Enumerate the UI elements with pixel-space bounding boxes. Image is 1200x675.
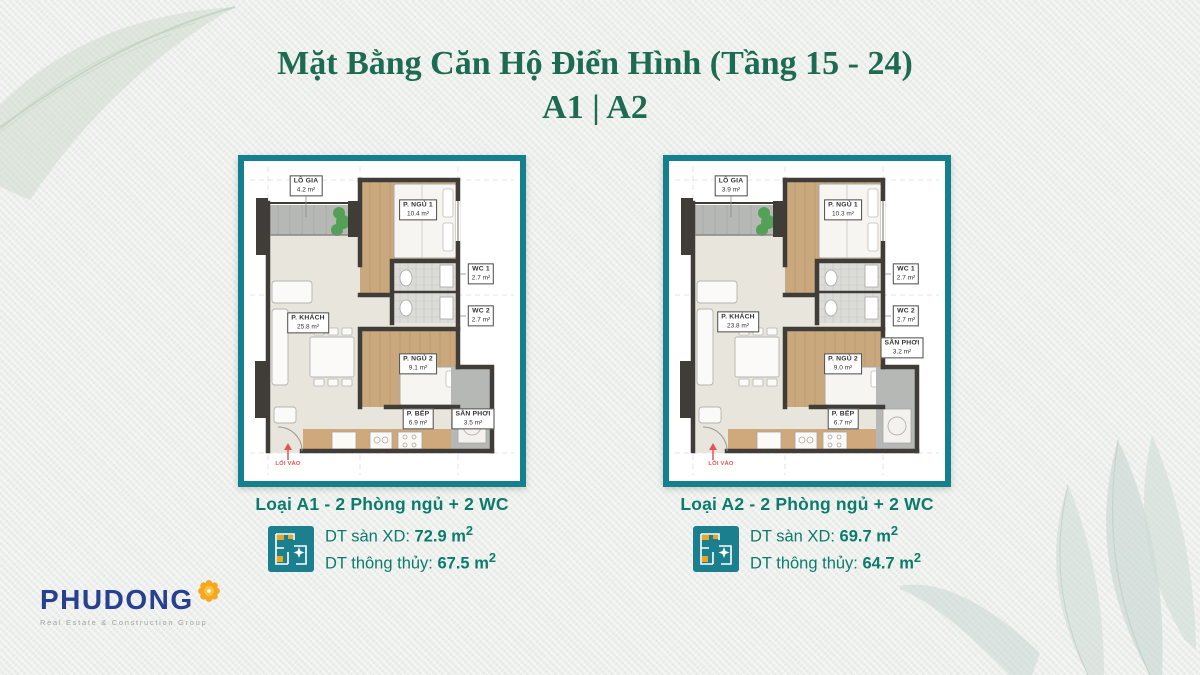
room-label-bedroom-1: P. NGỦ 1 10.3 m² [824, 199, 862, 220]
room-label-drying-yard: SÂN PHƠI 3.2 m² [881, 337, 924, 358]
floorplan-a2: LÔ GIA 3.9 m² P. NGỦ 1 10.3 m² WC 1 2.7 … [663, 155, 951, 487]
room-label-wc-2: WC 2 2.7 m² [893, 305, 919, 326]
entrance-label: LỐI VÀO [275, 461, 300, 467]
title-line-1: Mặt Bằng Căn Hộ Điển Hình (Tầng 15 - 24) [0, 44, 1190, 85]
room-label-lo-gia: LÔ GIA 3.9 m² [715, 175, 748, 196]
room-label-kitchen: P. BẾP 6.7 m² [828, 408, 859, 429]
room-label-living: P. KHÁCH 25.8 m² [287, 312, 329, 333]
logo-flower-icon [196, 578, 222, 604]
room-label-kitchen: P. BẾP 6.9 m² [403, 408, 434, 429]
caption-a2: Loại A2 - 2 Phòng ngủ + 2 WC DT sàn XD: … [663, 494, 951, 575]
logo-brand-text: PHUDONG [40, 586, 194, 614]
caption-a2-areas: DT sàn XD: 69.7 m2 DT thông thủy: 64.7 m… [750, 522, 921, 575]
mini-floorplan-icon [693, 526, 739, 572]
logo-phudong: PHUDONG Real Estate & Construction Group [40, 586, 222, 627]
area-line-net: DT thông thủy: 64.7 m2 [750, 549, 921, 576]
room-label-wc-2: WC 2 2.7 m² [468, 305, 494, 326]
room-label-living: P. KHÁCH 23.8 m² [717, 311, 759, 332]
room-label-bedroom-2: P. NGỦ 2 9.0 m² [824, 353, 862, 374]
title-line-2: A1 | A2 [0, 88, 1190, 129]
room-label-wc-1: WC 1 2.7 m² [893, 263, 919, 284]
room-label-lo-gia: LÔ GIA 4.2 m² [290, 175, 323, 196]
room-label-bedroom-2: P. NGỦ 2 9.1 m² [399, 353, 437, 374]
area-line-net: DT thông thủy: 67.5 m2 [325, 549, 496, 576]
area-line-gross: DT sàn XD: 69.7 m2 [750, 522, 921, 549]
room-label-drying-yard: SÂN PHƠI 3.5 m² [452, 408, 495, 429]
page-title: Mặt Bằng Căn Hộ Điển Hình (Tầng 15 - 24)… [0, 44, 1190, 129]
floorplan-a1: LÔ GIA 4.2 m² P. NGỦ 1 10.4 m² WC 1 2.7 … [238, 155, 526, 487]
caption-a1-areas: DT sàn XD: 72.9 m2 DT thông thủy: 67.5 m… [325, 522, 496, 575]
room-label-bedroom-1: P. NGỦ 1 10.4 m² [399, 199, 437, 220]
caption-a2-title: Loại A2 - 2 Phòng ngủ + 2 WC [663, 494, 951, 515]
entrance-label: LỐI VÀO [708, 461, 733, 467]
caption-a1-title: Loại A1 - 2 Phòng ngủ + 2 WC [238, 494, 526, 515]
area-line-gross: DT sàn XD: 72.9 m2 [325, 522, 496, 549]
room-label-wc-1: WC 1 2.7 m² [468, 263, 494, 284]
caption-a1: Loại A1 - 2 Phòng ngủ + 2 WC DT sàn XD: … [238, 494, 526, 575]
mini-floorplan-icon [268, 526, 314, 572]
logo-tagline: Real Estate & Construction Group [40, 618, 222, 627]
